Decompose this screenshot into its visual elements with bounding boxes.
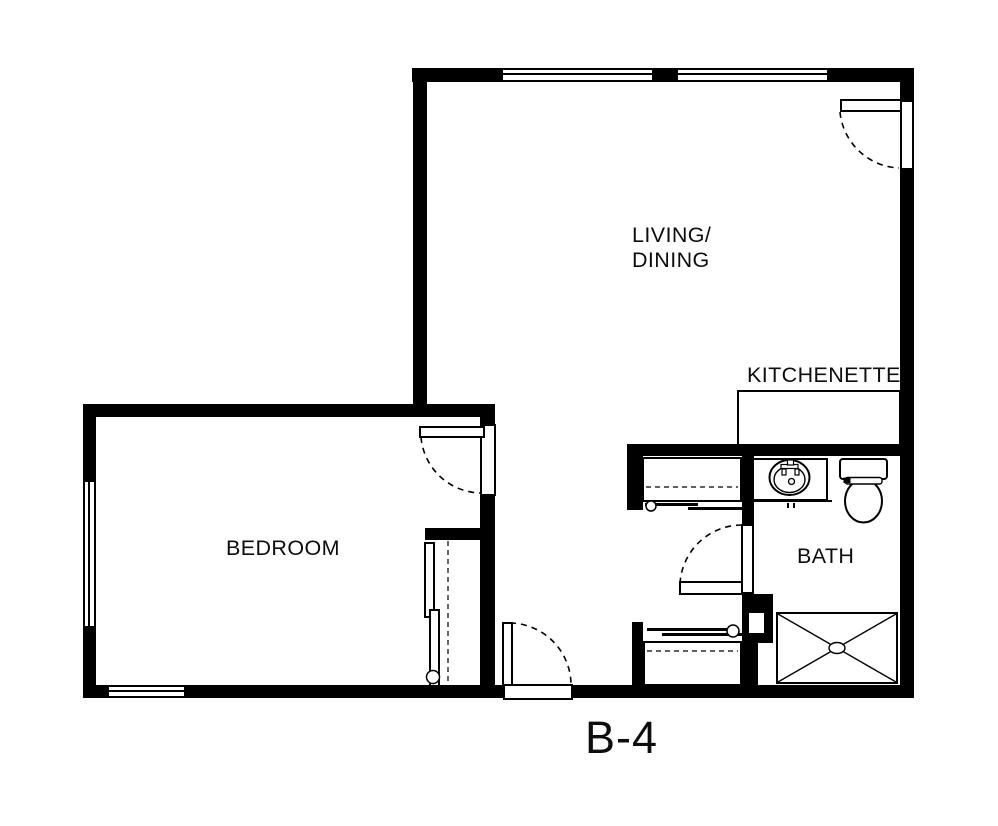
living-dining-label-line2: DINING: [632, 248, 711, 273]
wall-hall-west-below-door: [480, 496, 495, 698]
living-dining-label-line1: LIVING/: [632, 223, 711, 248]
hall-closet-box: [642, 457, 742, 502]
wall-bedroom-west-upper: [83, 404, 96, 483]
toilet-tank-icon: [840, 459, 887, 479]
wall-chase-notch: [749, 613, 764, 633]
entry-door-swing-arc: [840, 112, 899, 168]
wall-hall-closet-stub: [627, 456, 643, 510]
linen-closet-slider-1: [647, 628, 733, 631]
living-dining-label: LIVING/ DINING: [632, 223, 711, 273]
kitchenette-counter: [737, 390, 901, 446]
unit-title: B-4: [585, 712, 658, 764]
linen-closet-box: [643, 641, 742, 686]
hall-door-swing-arc: [510, 623, 571, 684]
bedroom-door-leaf: [419, 426, 485, 438]
bath-door-leaf: [679, 581, 743, 595]
vanity-tick-1: [787, 503, 789, 508]
vanity-tick-2: [793, 503, 795, 508]
bath-door-swing-arc: [680, 525, 742, 584]
toilet-bowl-icon: [845, 480, 882, 523]
bedroom-west-window: [83, 482, 96, 626]
window-glazing-line: [109, 690, 184, 692]
living-window-2: [678, 68, 827, 82]
bath-label: BATH: [797, 544, 854, 569]
entry-door-leaf: [840, 99, 902, 112]
toilet-flush-lever-icon: [844, 478, 851, 484]
bathroom-vanity: [752, 458, 828, 501]
wall-bedroom-north: [83, 404, 495, 417]
living-window-1: [503, 68, 652, 82]
bedroom-door-swing-arc: [421, 437, 481, 493]
bedroom-closet-panel-2: [429, 609, 440, 687]
wall-living-west: [413, 68, 427, 417]
wall-right-below-entry: [900, 169, 914, 698]
wall-bedroom-closet-top: [425, 528, 482, 540]
entry-door-opening: [900, 100, 914, 170]
hall-closet-slider-1: [645, 503, 698, 506]
bedroom-south-window: [109, 685, 184, 698]
floor-plan-canvas: LIVING/ DINING KITCHENETTE BEDROOM BATH …: [0, 0, 998, 826]
bedroom-label: BEDROOM: [226, 536, 340, 561]
wall-bath-chase: [742, 594, 773, 643]
hall-door-leaf: [502, 622, 513, 686]
wall-top-mullion: [652, 68, 678, 82]
hall-door-opening: [503, 684, 573, 700]
wall-bath-west-lower: [742, 643, 758, 686]
vanity-front-edge: [748, 500, 832, 502]
hall-closet-slider-2: [688, 507, 742, 510]
window-glazing-line: [88, 482, 90, 626]
wall-bottom-mid-segment: [183, 685, 503, 698]
wall-bottom-right-segment: [573, 685, 914, 698]
shower-pan: [776, 612, 898, 684]
bedroom-closet-panel-1: [424, 542, 435, 618]
window-glazing-line: [503, 73, 652, 75]
wall-bottom-left-segment: [83, 685, 110, 698]
window-glazing-line: [678, 73, 827, 75]
wall-linen-closet-stub: [632, 622, 643, 686]
linen-closet-slider-2: [662, 633, 742, 636]
kitchenette-label: KITCHENETTE: [747, 363, 901, 388]
wall-right-above-entry: [900, 68, 914, 101]
toilet-seat-hinge-icon: [845, 478, 882, 485]
